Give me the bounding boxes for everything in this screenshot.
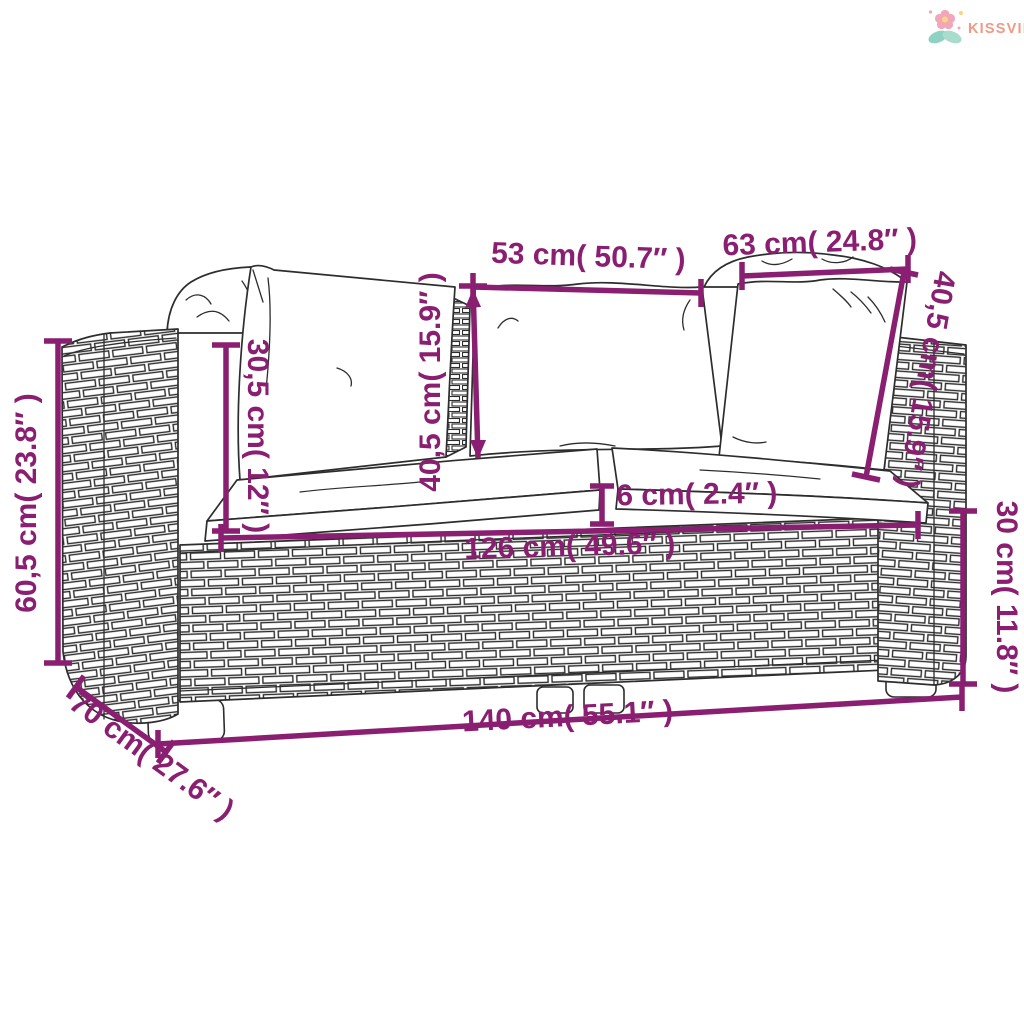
dim-back-top-right-label: 63 cm( 24.8″ ) [722,223,918,263]
dim-total-width-label: 140 cm( 55.1″ ) [461,695,674,739]
dim-total-height-label: 60,5 cm( 23.8″ ) [10,393,43,613]
sofa-dimension-drawing: 60,5 cm( 23.8″ ) 30,5 cm( 12″ ) 40,5 cm(… [0,0,1024,1024]
right-back-pillow [719,279,907,470]
dim-back-top-left-label: 53 cm( 50.7″ ) [491,237,687,277]
product-diagram: 60,5 cm( 23.8″ ) 30,5 cm( 12″ ) 40,5 cm(… [0,0,1024,1024]
dim-pillow-height-middle-label: 40,5 cm( 15.9″ ) [414,272,447,492]
dim-seat-width-inner-label: 126 cm( 49.6″ ) [464,527,676,566]
brand-logo: KISSVILÁG [927,10,1024,46]
dim-base-height-label: 30 cm( 11.8″ ) [990,501,1023,694]
brand-name: KISSVILÁG [968,20,1024,37]
sofa-line-art [62,253,966,744]
flower-sprout-icon [927,10,964,46]
dim-armrest-height-label: 30,5 cm( 12″ ) [241,339,274,533]
left-armrest [62,329,178,723]
middle-back-pillow [470,283,722,456]
dim-cushion-thickness-label: 6 cm( 2.4″ ) [616,477,778,513]
